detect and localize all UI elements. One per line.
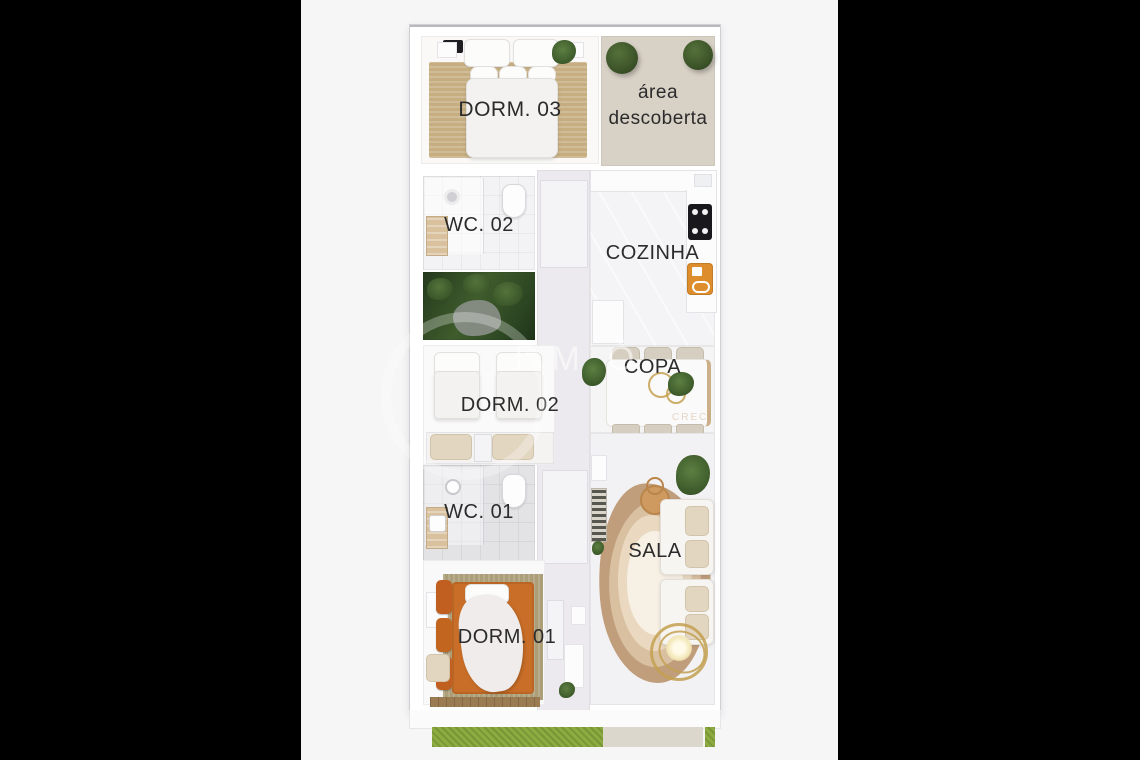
door-leaf (542, 470, 588, 564)
room-sala: SALA (590, 433, 715, 705)
burner (702, 228, 708, 234)
wc02-label: WC. 02 (423, 214, 535, 237)
wall-shelf (591, 455, 607, 481)
sofa (660, 499, 714, 575)
burner (692, 228, 698, 234)
sala-label: SALA (595, 540, 715, 563)
nightstand (437, 42, 457, 58)
burner (702, 209, 708, 215)
room-dorm01: DORM. 01 (423, 560, 545, 705)
plant-icon (676, 455, 710, 495)
foliage (427, 278, 453, 300)
watermark-subtext: CRECI (672, 412, 713, 423)
wc01-label: WC. 01 (423, 501, 535, 524)
foliage (463, 274, 491, 294)
area-line2: descoberta (601, 106, 715, 132)
appliance-handle (692, 281, 710, 293)
nightstand (426, 654, 450, 682)
sofa-cushion (685, 586, 709, 612)
room-wc02: WC. 02 (423, 176, 535, 270)
burner (692, 209, 698, 215)
entry-plaque (571, 606, 586, 625)
toilet-icon (502, 184, 526, 218)
grass-patch (705, 727, 715, 747)
chandelier-glow (666, 635, 692, 661)
headboard-cushion (436, 580, 452, 614)
orange-appliance (687, 263, 713, 295)
cooktop-icon (688, 204, 712, 240)
watermark-text: IMÓ (514, 340, 662, 379)
tree-icon (683, 40, 713, 70)
watermark-logo-icon (381, 312, 549, 480)
kitchen-island (592, 300, 624, 344)
grass-strip (432, 727, 603, 747)
sofa-cushion (685, 506, 709, 536)
basket-handle (646, 477, 664, 495)
room-area-descoberta: área descoberta (601, 36, 715, 166)
floorplan-screenshot: DORM. 03 área descoberta WC. 02 (0, 0, 1140, 760)
dorm03-label: DORM. 03 (421, 98, 599, 122)
sink-icon (694, 174, 712, 187)
area-descoberta-label: área descoberta (601, 80, 715, 132)
dorm01-label: DORM. 01 (422, 626, 592, 649)
foliage (493, 282, 523, 306)
plant-icon (552, 40, 576, 64)
room-wc01: WC. 01 (423, 465, 535, 561)
ceiling-lamp-icon (445, 479, 461, 495)
tree-icon (606, 42, 638, 74)
appliance-panel (692, 267, 702, 276)
cozinha-label: COZINHA (590, 242, 715, 265)
tv-rack (591, 488, 607, 542)
area-line1: área (601, 80, 715, 106)
bed-pillow (464, 39, 510, 67)
room-dorm03: DORM. 03 (421, 36, 599, 164)
wood-deck (430, 697, 540, 707)
shower-head-icon (447, 192, 457, 202)
door-leaf (540, 180, 588, 268)
pavement-strip (603, 727, 703, 747)
room-cozinha: COZINHA (590, 170, 715, 346)
